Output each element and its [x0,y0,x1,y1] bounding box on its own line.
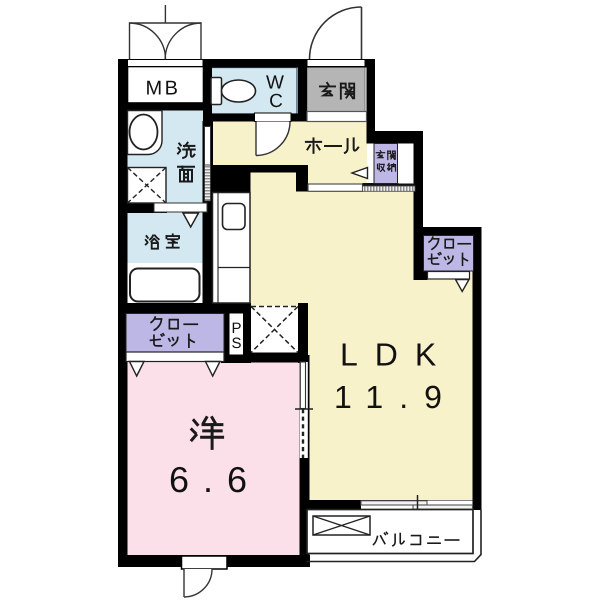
svg-text:MB: MB [146,78,181,100]
svg-text:11.9: 11.9 [334,379,458,415]
svg-text:6.6: 6.6 [169,459,261,500]
svg-text:S: S [231,335,241,352]
svg-text:C: C [269,91,283,112]
svg-text:LDK: LDK [340,337,453,373]
